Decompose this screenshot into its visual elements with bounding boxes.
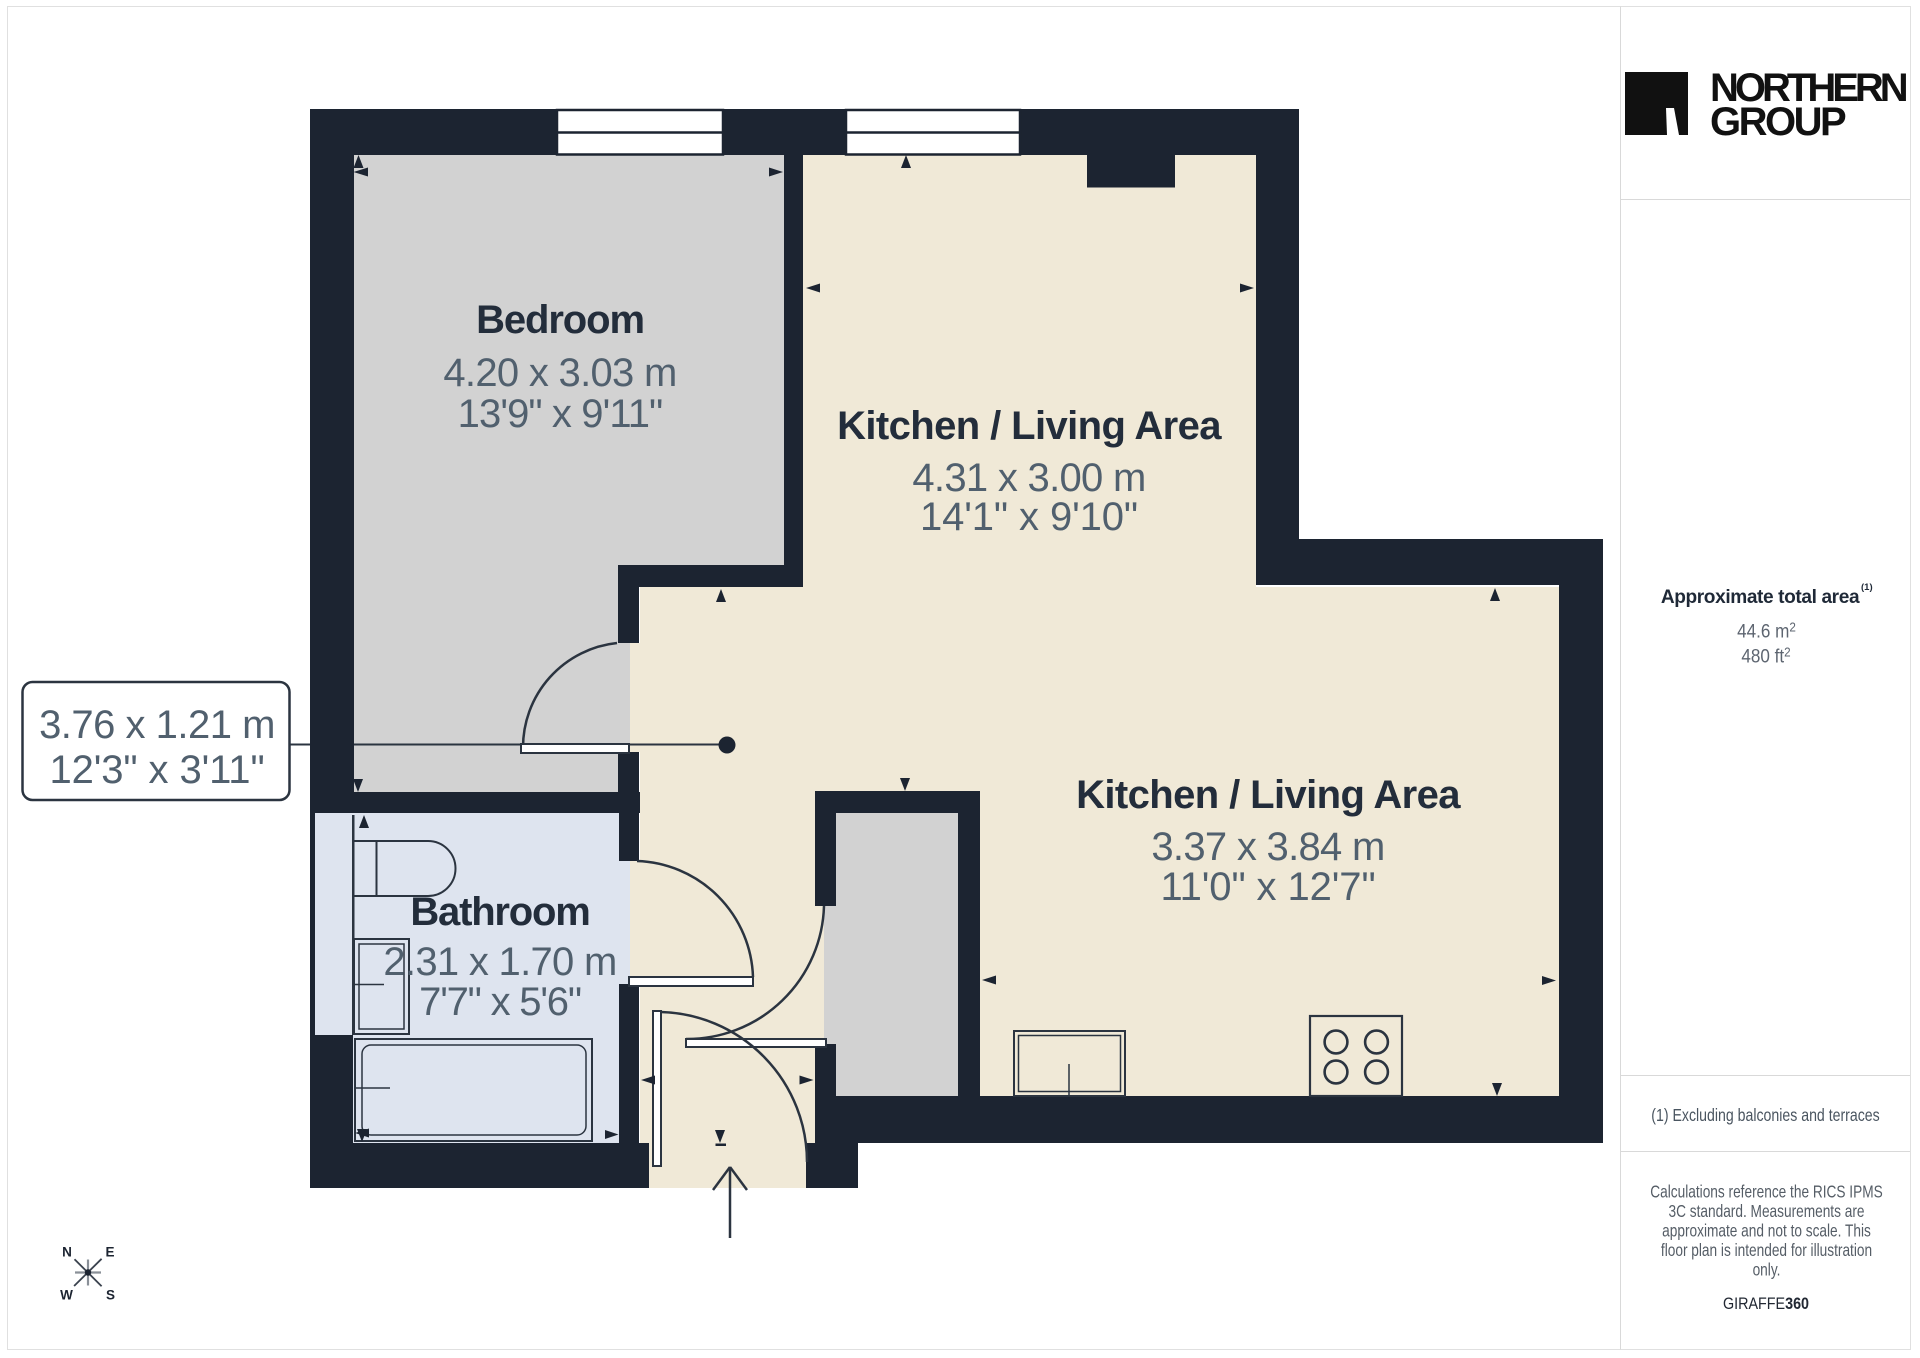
svg-text:3C standard. Measurements are: 3C standard. Measurements are	[1669, 1202, 1865, 1221]
svg-text:4.31 x 3.00 m: 4.31 x 3.00 m	[912, 456, 1145, 500]
svg-text:GIRAFFE360: GIRAFFE360	[1723, 1295, 1809, 1313]
svg-text:W: W	[60, 1288, 73, 1303]
svg-text:2.31 x 1.70 m: 2.31 x 1.70 m	[383, 940, 616, 984]
svg-text:GROUP: GROUP	[1710, 100, 1846, 144]
svg-text:S: S	[106, 1288, 115, 1303]
svg-text:N: N	[62, 1245, 72, 1260]
svg-text:13'9" x 9'11": 13'9" x 9'11"	[458, 392, 663, 436]
svg-text:only.: only.	[1753, 1261, 1781, 1280]
svg-text:(1) Excluding balconies and te: (1) Excluding balconies and terraces	[1651, 1105, 1879, 1125]
svg-text:Bathroom: Bathroom	[410, 890, 589, 934]
svg-text:7'7" x 5'6": 7'7" x 5'6"	[419, 980, 581, 1024]
svg-text:approximate and not to scale.: approximate and not to scale. This	[1662, 1222, 1871, 1241]
svg-text:11'0" x 12'7": 11'0" x 12'7"	[1160, 865, 1375, 909]
svg-text:E: E	[105, 1245, 114, 1260]
svg-text:(1): (1)	[1861, 582, 1873, 593]
svg-text:14'1" x 9'10": 14'1" x 9'10"	[920, 495, 1138, 539]
svg-text:480 ft2: 480 ft2	[1741, 645, 1790, 667]
svg-text:Approximate total area: Approximate total area	[1661, 587, 1860, 608]
svg-text:3.76 x 1.21 m: 3.76 x 1.21 m	[39, 703, 275, 747]
svg-text:12'3" x 3'11": 12'3" x 3'11"	[49, 748, 264, 792]
svg-text:Kitchen / Living Area: Kitchen / Living Area	[837, 404, 1222, 448]
svg-text:Calculations reference the RIC: Calculations reference the RICS IPMS	[1650, 1183, 1882, 1202]
svg-text:Kitchen / Living Area: Kitchen / Living Area	[1076, 773, 1461, 817]
svg-text:44.6 m2: 44.6 m2	[1737, 620, 1796, 642]
svg-text:floor plan is intended for ill: floor plan is intended for illustration	[1661, 1241, 1872, 1260]
svg-text:4.20 x 3.03 m: 4.20 x 3.03 m	[443, 351, 676, 395]
svg-text:3.37 x 3.84 m: 3.37 x 3.84 m	[1151, 825, 1384, 869]
svg-text:Bedroom: Bedroom	[476, 298, 644, 342]
